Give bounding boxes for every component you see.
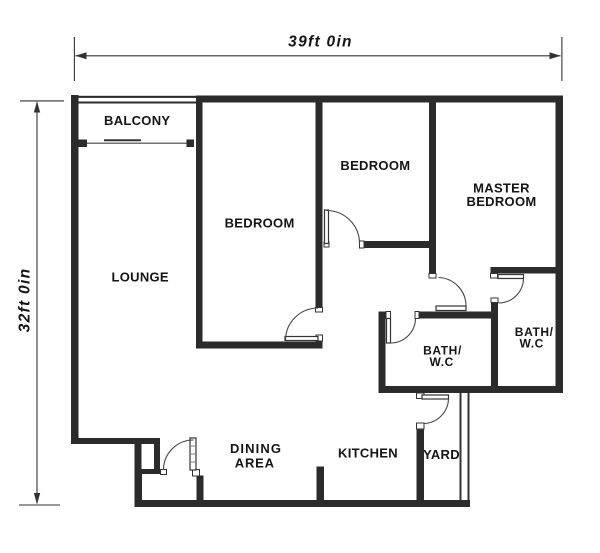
- svg-text:W.C: W.C: [519, 337, 543, 351]
- svg-text:BEDROOM: BEDROOM: [340, 158, 410, 173]
- svg-text:YARD: YARD: [423, 447, 460, 462]
- svg-text:W.C: W.C: [429, 355, 453, 369]
- svg-text:39ft 0in: 39ft 0in: [288, 34, 353, 51]
- svg-text:32ft 0in: 32ft 0in: [17, 268, 34, 333]
- svg-text:BEDROOM: BEDROOM: [225, 216, 295, 231]
- svg-text:BALCONY: BALCONY: [104, 113, 170, 128]
- svg-text:AREA: AREA: [235, 456, 275, 471]
- svg-text:BEDROOM: BEDROOM: [467, 194, 537, 209]
- svg-text:KITCHEN: KITCHEN: [338, 445, 398, 460]
- svg-text:DINING: DINING: [230, 441, 282, 456]
- svg-text:LOUNGE: LOUNGE: [111, 270, 168, 285]
